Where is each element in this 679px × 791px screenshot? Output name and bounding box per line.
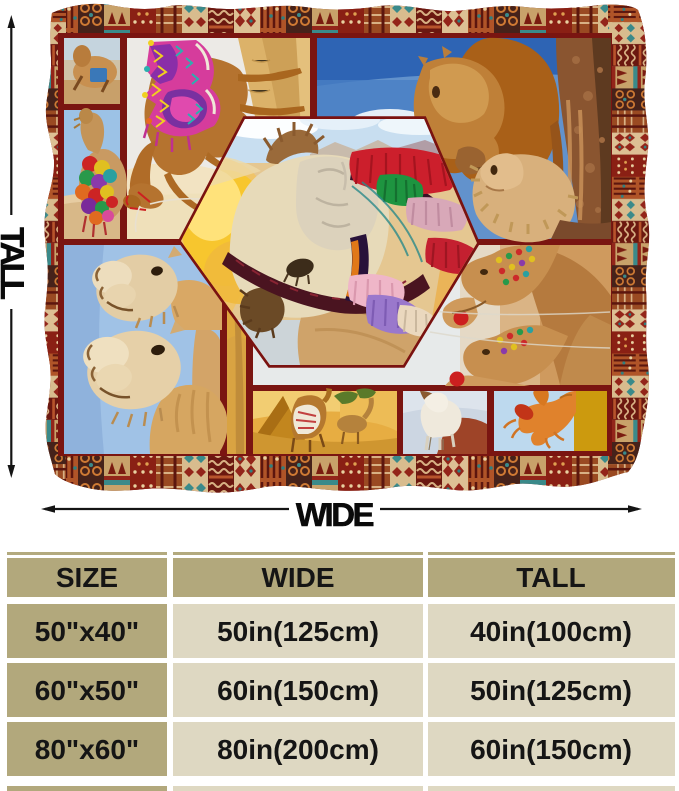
svg-text:50"x40": 50"x40" bbox=[35, 616, 139, 647]
svg-text:80in(200cm): 80in(200cm) bbox=[217, 734, 379, 765]
svg-text:60"x50": 60"x50" bbox=[35, 675, 139, 706]
svg-text:60in(150cm): 60in(150cm) bbox=[470, 734, 632, 765]
svg-text:50in(125cm): 50in(125cm) bbox=[470, 675, 632, 706]
svg-text:50in(125cm): 50in(125cm) bbox=[217, 616, 379, 647]
svg-text:40in(100cm): 40in(100cm) bbox=[470, 616, 632, 647]
svg-text:WIDE: WIDE bbox=[296, 496, 374, 533]
svg-text:TALL: TALL bbox=[0, 227, 31, 300]
svg-text:TALL: TALL bbox=[516, 562, 585, 593]
svg-text:80"x60": 80"x60" bbox=[35, 734, 139, 765]
svg-text:SIZE: SIZE bbox=[56, 562, 118, 593]
svg-text:60in(150cm): 60in(150cm) bbox=[217, 675, 379, 706]
svg-text:WIDE: WIDE bbox=[261, 562, 334, 593]
